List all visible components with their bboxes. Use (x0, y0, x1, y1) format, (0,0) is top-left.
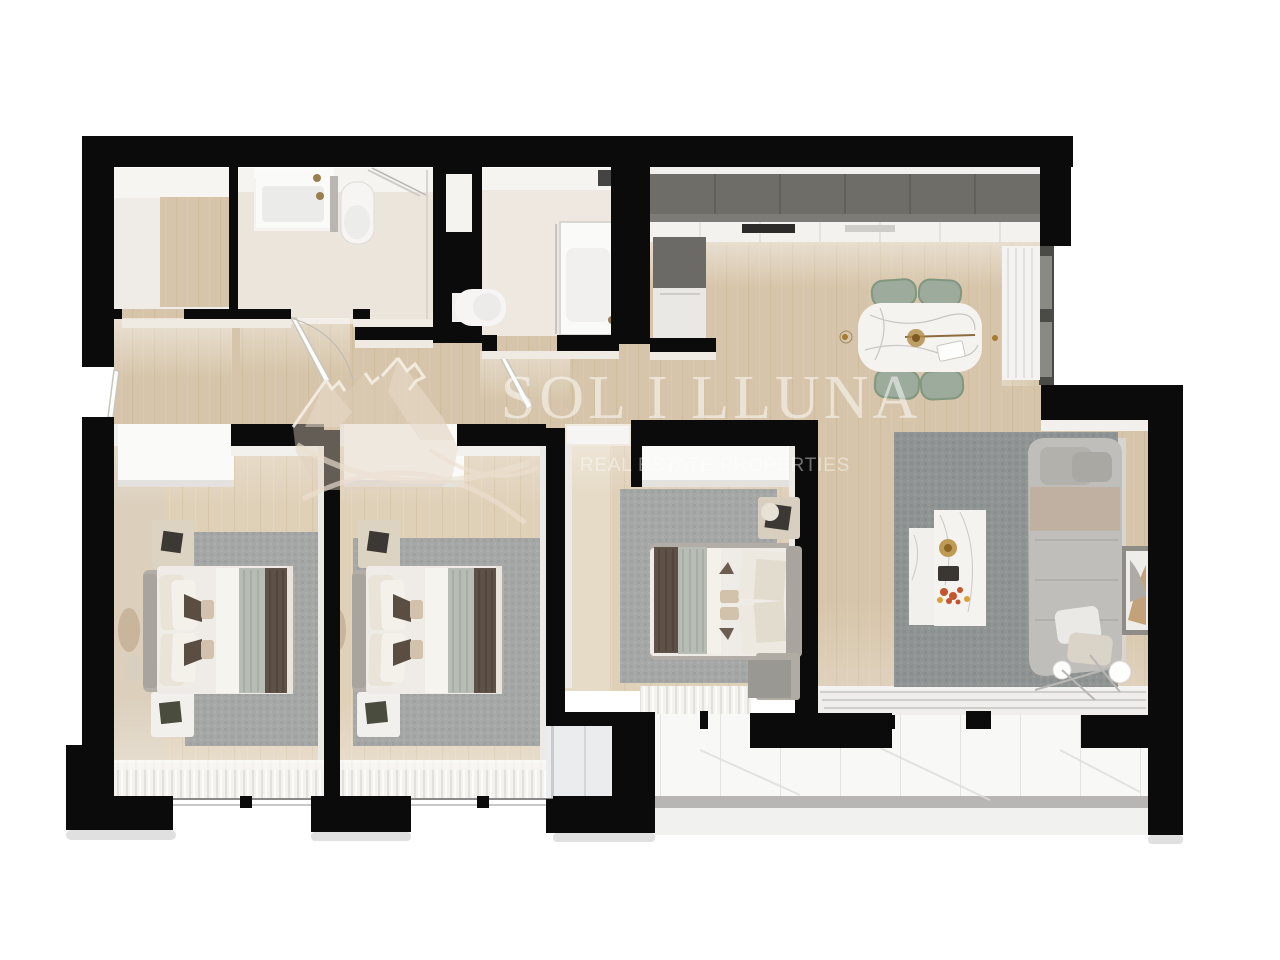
svg-text:REAL ESTATE PROPERTIES: REAL ESTATE PROPERTIES (580, 455, 850, 476)
svg-text:SOL I LLUNA: SOL I LLUNA (501, 364, 922, 432)
